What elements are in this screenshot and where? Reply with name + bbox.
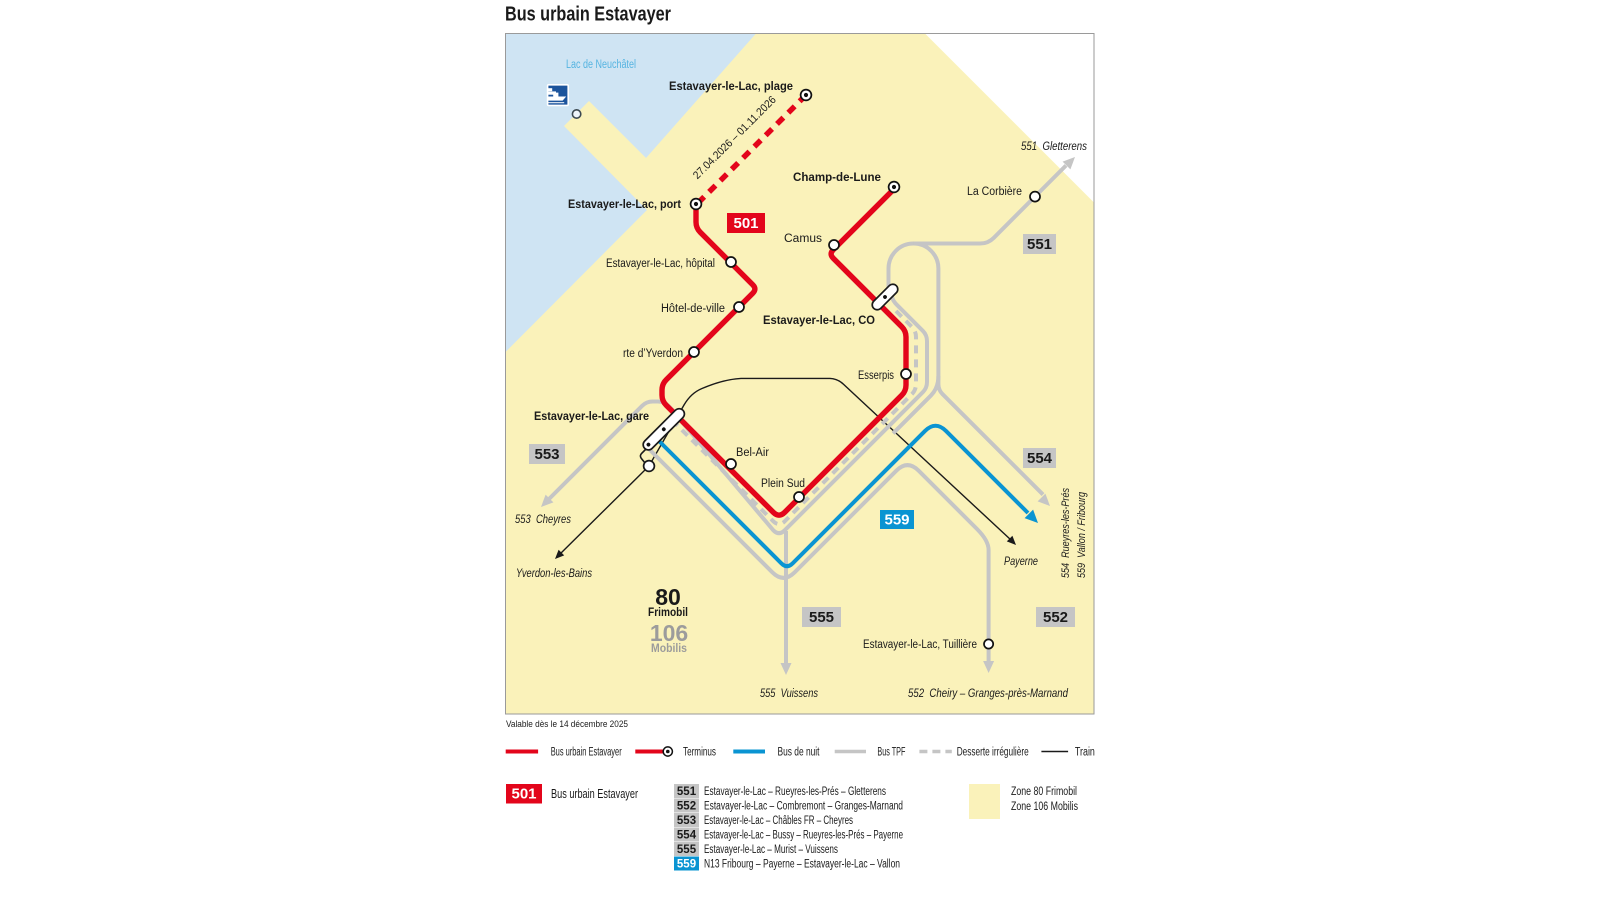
svg-text:553: 553 — [534, 446, 559, 463]
svg-text:Estavayer-le-Lac, port: Estavayer-le-Lac, port — [568, 197, 681, 211]
svg-text:rte d’Yverdon: rte d’Yverdon — [623, 348, 683, 360]
svg-text:554: 554 — [677, 830, 697, 842]
svg-text:Bus urbain Estavayer: Bus urbain Estavayer — [505, 4, 671, 26]
svg-text:559: 559 — [884, 512, 909, 529]
svg-text:Mobilis: Mobilis — [651, 643, 687, 655]
svg-text:Estavayer-le-Lac – Bussy – Rue: Estavayer-le-Lac – Bussy – Rueyres-les-P… — [704, 830, 903, 842]
svg-text:551 Gletterens: 551 Gletterens — [1021, 141, 1087, 153]
svg-text:555: 555 — [809, 609, 834, 626]
svg-text:Yverdon-les-Bains: Yverdon-les-Bains — [516, 568, 592, 580]
svg-text:Champ-de-Lune: Champ-de-Lune — [793, 170, 881, 184]
svg-text:La Corbière: La Corbière — [967, 186, 1022, 198]
svg-text:Estavayer-le-Lac – Rueyres-les: Estavayer-le-Lac – Rueyres-les-Prés – Gl… — [704, 786, 886, 798]
svg-text:Bus de nuit: Bus de nuit — [778, 747, 821, 759]
svg-text:501: 501 — [733, 215, 758, 232]
svg-text:551: 551 — [677, 786, 697, 798]
svg-text:552: 552 — [1043, 609, 1068, 626]
svg-text:552: 552 — [677, 801, 696, 813]
svg-text:Payerne: Payerne — [1004, 556, 1038, 568]
svg-text:551: 551 — [1027, 236, 1052, 253]
svg-text:Bus TPF: Bus TPF — [877, 747, 905, 759]
svg-text:Estavayer-le-Lac – Combremont: Estavayer-le-Lac – Combremont – Granges-… — [704, 801, 903, 813]
svg-text:Camus: Camus — [784, 233, 822, 245]
svg-text:553: 553 — [677, 815, 696, 827]
svg-text:Bel-Air: Bel-Air — [736, 447, 769, 459]
svg-text:555 Vuissens: 555 Vuissens — [760, 688, 818, 700]
svg-text:Estavayer-le-Lac, plage: Estavayer-le-Lac, plage — [669, 79, 793, 93]
svg-text:Bus urbain Estavayer: Bus urbain Estavayer — [551, 747, 622, 759]
svg-text:553 Cheyres: 553 Cheyres — [515, 514, 571, 526]
svg-text:Bus urbain Estavayer: Bus urbain Estavayer — [551, 787, 638, 801]
svg-text:Zone 80 Frimobil: Zone 80 Frimobil — [1011, 786, 1077, 798]
svg-text:Estavayer-le-Lac, gare: Estavayer-le-Lac, gare — [534, 409, 649, 423]
svg-text:Lac de Neuchâtel: Lac de Neuchâtel — [566, 59, 636, 71]
svg-text:N13 Fribourg – Payerne – Estav: N13 Fribourg – Payerne – Estavayer-le-La… — [704, 859, 900, 871]
svg-text:Desserte irrégulière: Desserte irrégulière — [957, 747, 1029, 759]
svg-text:Estavayer-le-Lac – Murist – Vu: Estavayer-le-Lac – Murist – Vuissens — [704, 844, 838, 856]
svg-text:Estavayer-le-Lac, Tuillière: Estavayer-le-Lac, Tuillière — [863, 639, 977, 651]
svg-text:554 Rueyres-les-Prés: 554 Rueyres-les-Prés — [1060, 488, 1072, 578]
svg-text:Estavayer-le-Lac, hôpital: Estavayer-le-Lac, hôpital — [606, 258, 715, 270]
svg-text:559: 559 — [677, 859, 696, 871]
svg-text:Valable dès le 14 décembre 202: Valable dès le 14 décembre 2025 — [506, 719, 628, 729]
svg-text:Estavayer-le-Lac, CO: Estavayer-le-Lac, CO — [763, 313, 875, 327]
svg-text:Estavayer-le-Lac – Châbles FR: Estavayer-le-Lac – Châbles FR – Cheyres — [704, 815, 853, 827]
svg-text:Train: Train — [1075, 747, 1095, 759]
svg-text:Frimobil: Frimobil — [648, 607, 688, 619]
svg-text:501: 501 — [511, 786, 536, 803]
svg-text:552 Cheiry – Granges-près-Mar: 552 Cheiry – Granges-près-Marnand — [908, 688, 1069, 700]
svg-text:Plein Sud: Plein Sud — [761, 478, 805, 490]
svg-text:Zone 106 Mobilis: Zone 106 Mobilis — [1011, 801, 1078, 813]
svg-text:Terminus: Terminus — [683, 747, 716, 759]
svg-text:Hôtel-de-ville: Hôtel-de-ville — [661, 303, 725, 315]
svg-text:559 Vallon / Fribourg: 559 Vallon / Fribourg — [1076, 491, 1088, 578]
svg-text:554: 554 — [1027, 450, 1053, 467]
svg-text:555: 555 — [677, 844, 697, 856]
svg-text:Esserpis: Esserpis — [858, 370, 894, 382]
